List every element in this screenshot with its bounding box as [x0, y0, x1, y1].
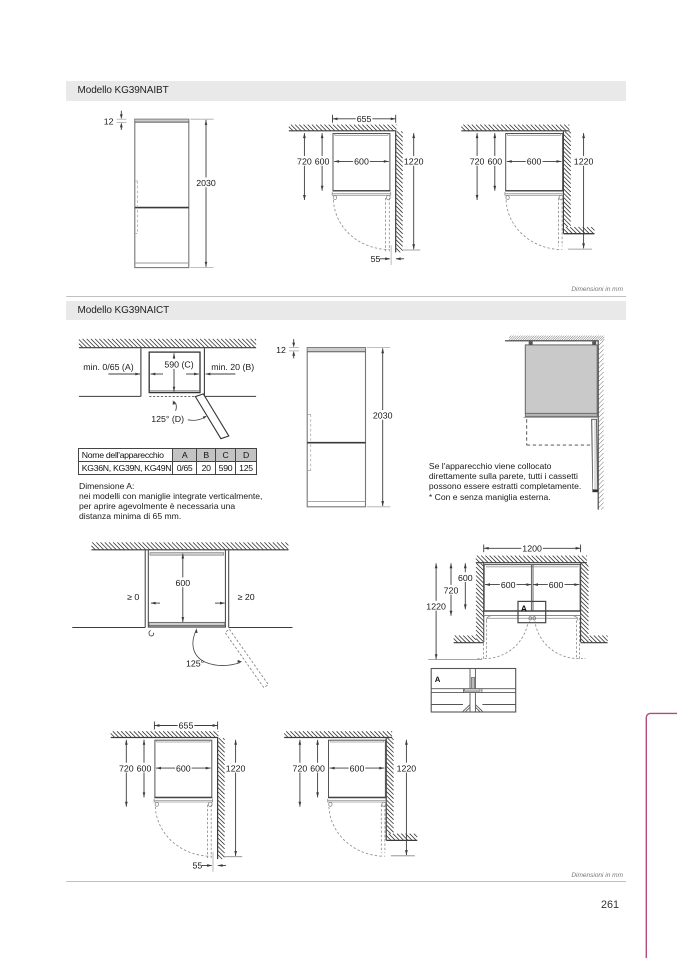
- svg-text:600: 600: [175, 578, 190, 588]
- svg-text:A: A: [435, 675, 441, 684]
- svg-text:600: 600: [354, 157, 369, 167]
- svg-text:655: 655: [357, 114, 372, 124]
- svg-text:min. 20 (B): min. 20 (B): [211, 362, 254, 372]
- svg-text:600: 600: [549, 580, 564, 590]
- svg-text:600: 600: [176, 763, 191, 773]
- svg-text:≥ 0: ≥ 0: [127, 592, 139, 602]
- svg-text:1220: 1220: [397, 763, 417, 773]
- svg-text:1220: 1220: [574, 157, 594, 167]
- svg-text:2030: 2030: [373, 411, 393, 421]
- svg-text:55: 55: [371, 254, 381, 264]
- svg-text:590 (C): 590 (C): [164, 360, 193, 370]
- svg-text:12: 12: [104, 117, 114, 127]
- svg-text:720: 720: [297, 157, 312, 167]
- svg-text:125° (D): 125° (D): [151, 414, 184, 424]
- svg-text:720: 720: [293, 763, 308, 773]
- svg-text:720: 720: [119, 763, 134, 773]
- svg-text:2030: 2030: [196, 178, 216, 188]
- svg-text:min. 0/65 (A): min. 0/65 (A): [83, 362, 133, 372]
- svg-text:≥ 20: ≥ 20: [238, 592, 255, 602]
- svg-text:600: 600: [458, 573, 473, 583]
- svg-text:600: 600: [310, 763, 325, 773]
- svg-text:655: 655: [179, 721, 194, 731]
- svg-text:12: 12: [276, 345, 286, 355]
- svg-text:720: 720: [470, 157, 485, 167]
- svg-text:125°: 125°: [186, 658, 204, 668]
- svg-text:600: 600: [527, 157, 542, 167]
- svg-text:55: 55: [193, 861, 203, 871]
- svg-text:600: 600: [350, 763, 365, 773]
- svg-text:600: 600: [487, 157, 502, 167]
- svg-text:1220: 1220: [426, 601, 446, 611]
- svg-text:600: 600: [137, 763, 152, 773]
- svg-text:1200: 1200: [522, 544, 542, 554]
- svg-text:600: 600: [315, 157, 330, 167]
- svg-text:720: 720: [444, 586, 459, 596]
- svg-text:1220: 1220: [226, 763, 246, 773]
- svg-text:600: 600: [501, 580, 516, 590]
- svg-text:A: A: [521, 603, 528, 613]
- svg-text:1220: 1220: [404, 157, 424, 167]
